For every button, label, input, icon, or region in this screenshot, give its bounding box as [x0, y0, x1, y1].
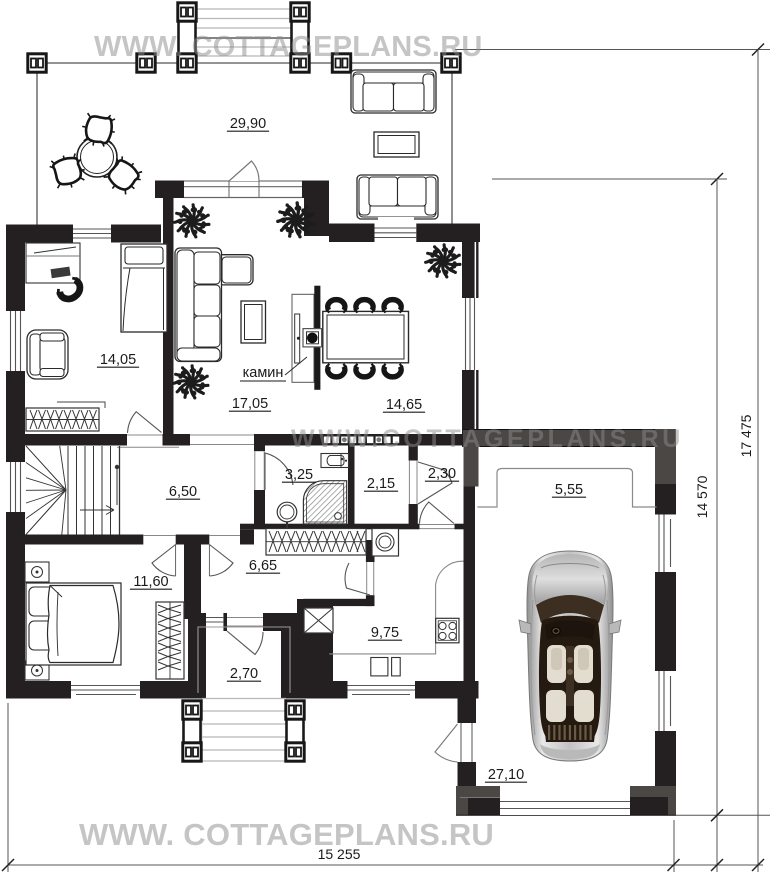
svg-text:2,70: 2,70 [230, 666, 258, 682]
svg-text:6,50: 6,50 [169, 484, 197, 500]
svg-text:17,05: 17,05 [232, 396, 268, 412]
svg-text:WWW. COTTAGEPLANS.RU: WWW. COTTAGEPLANS.RU [79, 817, 494, 852]
svg-text:14,65: 14,65 [386, 397, 422, 413]
svg-text:17 475: 17 475 [738, 414, 754, 457]
svg-text:3,25: 3,25 [285, 467, 313, 483]
svg-text:WWW.COTTAGEPLANS.RU: WWW.COTTAGEPLANS.RU [291, 425, 684, 453]
svg-text:27,10: 27,10 [488, 767, 524, 783]
svg-text:5,55: 5,55 [555, 482, 583, 498]
svg-text:WWW. COTTAGEPLANS.RU: WWW. COTTAGEPLANS.RU [94, 31, 482, 63]
svg-text:29,90: 29,90 [230, 116, 266, 132]
svg-text:14,05: 14,05 [100, 352, 136, 368]
svg-text:9,75: 9,75 [371, 625, 399, 641]
svg-text:6,65: 6,65 [249, 558, 277, 574]
svg-text:камин: камин [243, 365, 284, 381]
svg-text:14 570: 14 570 [694, 475, 710, 518]
svg-text:11,60: 11,60 [133, 574, 168, 590]
svg-text:2,30: 2,30 [428, 466, 456, 482]
svg-text:2,15: 2,15 [367, 476, 395, 492]
